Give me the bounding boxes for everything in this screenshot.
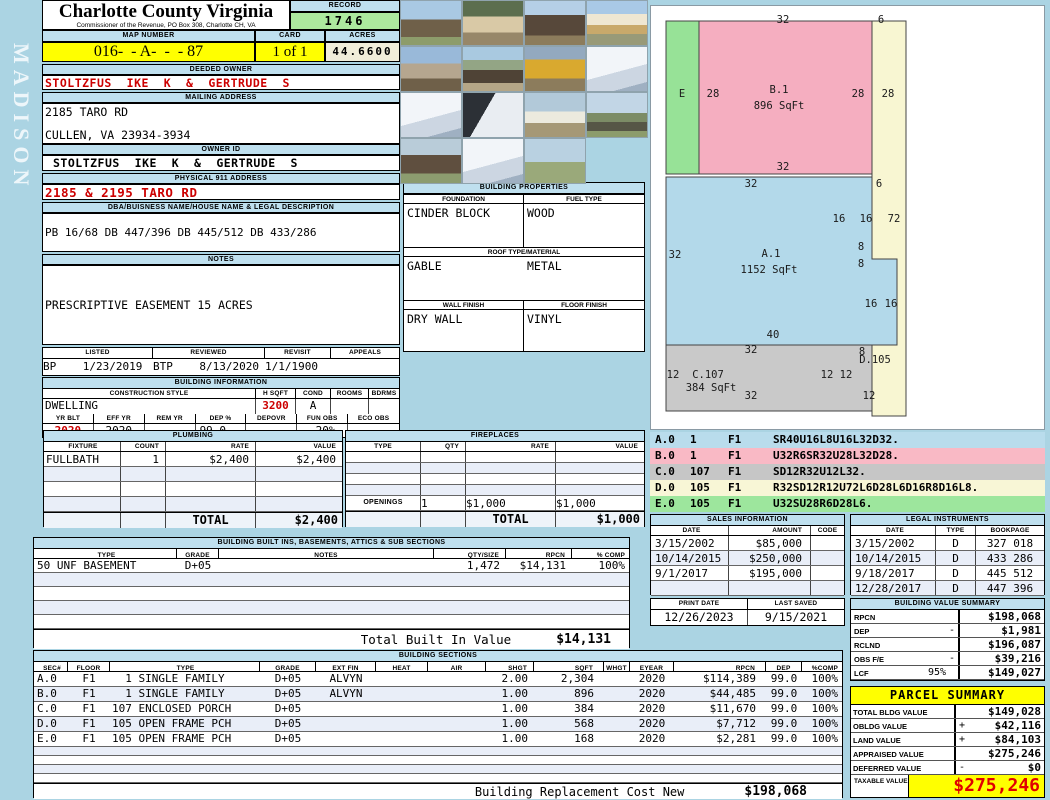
table-cell xyxy=(956,747,968,760)
photo-thumbnail[interactable] xyxy=(524,46,586,92)
notes-label: NOTES xyxy=(42,254,400,265)
table-cell xyxy=(166,482,256,496)
table-cell xyxy=(486,774,534,782)
sketch-dimension-label: 28 xyxy=(852,88,865,100)
table-cell: 1 xyxy=(686,432,728,448)
table-cell xyxy=(256,467,342,481)
table-cell: 3/15/2002 xyxy=(851,536,936,550)
table-row xyxy=(34,765,842,774)
table-cell: $196,087 xyxy=(958,638,1044,651)
table-cell xyxy=(44,497,121,511)
fireplaces-total-label: TOTAL xyxy=(466,512,556,527)
table-cell xyxy=(604,702,630,716)
table-cell xyxy=(110,756,260,764)
print-date-value: 12/26/2023 xyxy=(651,610,748,625)
table-cell xyxy=(572,573,629,586)
column-header: HEAT xyxy=(376,662,428,671)
wall-floor-values: DRY WALL VINYL xyxy=(404,310,644,351)
table-cell xyxy=(572,601,629,614)
openings-label: OPENINGS xyxy=(346,496,421,510)
table-cell xyxy=(811,536,844,550)
building-sections-footer: Building Replacement Cost New $198,068 xyxy=(34,783,842,799)
table-cell xyxy=(466,485,556,495)
table-cell: BP 1/23/2019 xyxy=(43,359,153,374)
fireplaces-panel: FIREPLACES TYPEQTYRATEVALUE OPENINGS 1 $… xyxy=(345,430,645,527)
table-cell: 99.0 xyxy=(766,687,802,701)
table-cell: OBS F/E xyxy=(851,652,906,665)
column-header: EFF YR xyxy=(94,414,145,423)
fireplace-openings-row: OPENINGS 1 $1,000 $1,000 xyxy=(346,496,644,511)
column-header: EYEAR xyxy=(630,662,674,671)
table-cell xyxy=(604,687,630,701)
sketch-dimension-label: 384 SqFt xyxy=(686,382,737,394)
table-cell: $0 xyxy=(968,761,1044,774)
foundation-value: CINDER BLOCK xyxy=(404,204,524,247)
table-cell: DEFERRED VALUE xyxy=(851,761,956,774)
table-cell: D+05 xyxy=(177,559,219,572)
table-cell xyxy=(630,765,674,773)
spacer xyxy=(44,513,121,528)
photo-thumbnail[interactable] xyxy=(400,46,462,92)
table-cell xyxy=(260,774,316,782)
column-header: TYPE xyxy=(110,662,260,671)
roof-type-material-label: ROOF TYPE/MATERIAL xyxy=(404,247,644,257)
table-cell xyxy=(421,452,466,462)
table-cell xyxy=(44,482,121,496)
spacer xyxy=(346,512,421,527)
column-header: RATE xyxy=(466,442,556,451)
table-row: RPCN$198,068 xyxy=(851,610,1044,624)
column-header: REVIEWED xyxy=(153,348,265,358)
table-cell xyxy=(421,485,466,495)
table-row: E.0105F1U32SU28R6D28L6. xyxy=(650,496,1045,512)
table-cell: APPRAISED VALUE xyxy=(851,747,956,760)
table-cell xyxy=(811,566,844,580)
table-row xyxy=(34,774,842,783)
table-cell: 1.00 xyxy=(486,717,534,731)
column-header: AMOUNT xyxy=(729,526,811,535)
table-cell: C.0 xyxy=(34,702,68,716)
table-row: OBS F/E-$39,216 xyxy=(851,652,1044,666)
table-cell: $11,670 xyxy=(674,702,766,716)
table-row: 3/15/2002D327 018 xyxy=(851,536,1044,551)
table-row xyxy=(44,482,342,497)
table-cell xyxy=(556,474,644,484)
openings-qty: 1 xyxy=(421,496,466,510)
table-cell: $114,389 xyxy=(674,672,766,686)
table-cell xyxy=(572,615,629,628)
table-cell: 1/1/1900 xyxy=(265,359,331,374)
photo-thumbnail[interactable] xyxy=(524,92,586,138)
table-cell: 1,472 xyxy=(434,559,506,572)
built-ins-footer: Total Built In Value $14,131 xyxy=(34,629,629,649)
table-row: FULLBATH1$2,400$2,400 xyxy=(44,452,342,467)
legal-header-row: DATETYPEBOOKPAGE xyxy=(851,526,1044,536)
table-row: DEFERRED VALUE-$0 xyxy=(851,761,1044,775)
column-header: TYPE xyxy=(936,526,976,535)
table-cell xyxy=(428,717,486,731)
table-cell xyxy=(428,765,486,773)
map-number-label: MAP NUMBER xyxy=(42,30,255,42)
sketch-dimension-label: 8 xyxy=(858,241,864,253)
table-cell xyxy=(110,765,260,773)
table-cell: F1 xyxy=(68,672,110,686)
table-cell: $275,246 xyxy=(968,747,1044,760)
table-cell xyxy=(428,687,486,701)
column-header: BOOKPAGE xyxy=(976,526,1044,535)
table-cell: 2020 xyxy=(630,717,674,731)
table-cell xyxy=(534,747,604,755)
sketch-dimension-label: 32 xyxy=(669,249,682,261)
table-cell: $84,103 xyxy=(968,733,1044,746)
record-number: 1746 xyxy=(290,12,400,30)
table-cell xyxy=(604,765,630,773)
wall-finish-label: WALL FINISH xyxy=(404,301,524,309)
physical-address-label: PHYSICAL 911 ADDRESS xyxy=(42,173,400,184)
building-sections-title: BUILDING SECTIONS xyxy=(34,651,842,662)
sketch-dimension-label: 72 xyxy=(888,213,901,225)
table-cell: DEP xyxy=(851,624,906,637)
table-cell: TOTAL BLDG VALUE xyxy=(851,705,956,718)
table-row xyxy=(34,587,629,601)
table-cell xyxy=(68,756,110,764)
sketch-dimension-label: 896 SqFt xyxy=(754,100,805,112)
table-cell xyxy=(166,467,256,481)
table-cell: 105 xyxy=(686,496,728,512)
table-cell xyxy=(466,452,556,462)
table-cell: F1 xyxy=(728,464,768,480)
table-cell: 12/28/2017 xyxy=(851,581,936,595)
table-cell: 9/1/2017 xyxy=(651,566,729,580)
sketch-dimension-label: E xyxy=(679,88,685,100)
column-header: GRADE xyxy=(177,549,219,558)
fireplaces-total-row: TOTAL $1,000 xyxy=(346,511,644,527)
table-cell xyxy=(346,452,421,462)
print-header-row: PRINT DATE LAST SAVED xyxy=(651,599,844,610)
note-line: PLANTED 1997, BALANCE PLANTED PINE 2015 xyxy=(45,345,399,346)
madison-watermark: MADISON xyxy=(0,0,34,235)
table-cell xyxy=(534,774,604,782)
table-cell xyxy=(766,756,802,764)
table-cell: 105 xyxy=(686,480,728,496)
table-cell: F1 xyxy=(728,480,768,496)
table-cell xyxy=(219,601,434,614)
photo-thumbnail[interactable] xyxy=(586,46,648,92)
table-cell: 99.0 xyxy=(766,732,802,746)
table-row: 10/14/2015D433 286 xyxy=(851,551,1044,566)
column-header: LISTED xyxy=(43,348,153,358)
table-row xyxy=(34,756,842,765)
sketch-dimension-label: 16 xyxy=(833,213,846,225)
sketch-dimension-label: 16 xyxy=(885,298,898,310)
bedrooms-value xyxy=(369,399,399,414)
photo-thumbnail[interactable] xyxy=(524,138,586,184)
sketch-dimension-label: 40 xyxy=(767,329,780,341)
spacer xyxy=(421,512,466,527)
column-header: QTY xyxy=(421,442,466,451)
table-cell: RPCN xyxy=(851,610,906,623)
table-cell: 100% xyxy=(802,687,842,701)
table-cell xyxy=(434,615,506,628)
table-cell xyxy=(331,359,399,374)
table-cell: + xyxy=(956,719,968,732)
sketch-dimension-label: 32 xyxy=(777,14,790,26)
openings-rate: $1,000 xyxy=(466,496,556,510)
table-cell xyxy=(260,747,316,755)
table-row: LCF95%$149,027 xyxy=(851,666,1044,680)
table-row xyxy=(651,581,844,596)
plumbing-rows: FULLBATH1$2,400$2,400 xyxy=(44,452,342,512)
table-cell: A.0 xyxy=(650,432,686,448)
card-value: 1 of 1 xyxy=(255,42,325,62)
table-cell xyxy=(428,747,486,755)
rooms-value xyxy=(331,399,369,414)
table-cell xyxy=(630,756,674,764)
table-row xyxy=(346,463,644,474)
table-cell xyxy=(434,587,506,600)
table-cell xyxy=(121,467,166,481)
photo-thumbnail[interactable] xyxy=(586,92,648,138)
table-cell: 896 xyxy=(534,687,604,701)
table-row: 3/15/2002$85,000 xyxy=(651,536,844,551)
table-cell: $250,000 xyxy=(729,551,811,565)
table-cell: $195,000 xyxy=(729,566,811,580)
taxable-value-amount: $275,246 xyxy=(909,775,1044,797)
table-cell xyxy=(802,774,842,782)
table-cell xyxy=(256,482,342,496)
column-header: TYPE xyxy=(346,442,421,451)
table-cell xyxy=(376,756,428,764)
table-cell xyxy=(177,601,219,614)
sketch-dimension-label: B.1 xyxy=(770,84,789,96)
column-header: YR BLT xyxy=(43,414,94,423)
table-cell: 1 xyxy=(121,452,166,466)
table-row xyxy=(34,573,629,587)
table-cell xyxy=(466,474,556,484)
photo-thumbnail[interactable] xyxy=(400,138,462,184)
table-cell: B.0 xyxy=(34,687,68,701)
table-cell xyxy=(556,463,644,473)
county-title: Charlotte County Virginia xyxy=(43,1,289,22)
column-header: SEC# xyxy=(34,662,68,671)
photo-thumbnail[interactable] xyxy=(462,46,524,92)
table-cell xyxy=(219,615,434,628)
sales-header-row: DATEAMOUNTCODE xyxy=(651,526,844,536)
sketch-dimension-label: 6 xyxy=(876,178,882,190)
table-cell xyxy=(421,463,466,473)
table-cell: $2,281 xyxy=(674,732,766,746)
table-cell: 10/14/2015 xyxy=(651,551,729,565)
table-row xyxy=(346,485,644,496)
sketch-dimension-label: 12 xyxy=(863,390,876,402)
table-cell: $42,116 xyxy=(968,719,1044,732)
fireplaces-title: FIREPLACES xyxy=(346,431,644,442)
table-cell: 9/18/2017 xyxy=(851,566,936,580)
table-cell: $85,000 xyxy=(729,536,811,550)
table-cell xyxy=(604,672,630,686)
sketch-dimension-label: C.107 xyxy=(692,369,724,381)
table-cell xyxy=(34,765,68,773)
table-cell: U32R6SR32U28L32D28. xyxy=(768,448,1045,464)
column-header: CODE xyxy=(811,526,844,535)
table-cell xyxy=(486,747,534,755)
table-cell xyxy=(506,587,572,600)
table-cell: F1 xyxy=(68,732,110,746)
table-cell xyxy=(256,497,342,511)
sketch-dimension-label: 32 xyxy=(745,178,758,190)
table-cell: B.0 xyxy=(650,448,686,464)
building-sections-panel: BUILDING SECTIONS SEC#FLOORTYPEGRADEEXT … xyxy=(33,650,843,798)
roof-type-value: GABLE xyxy=(404,257,524,300)
table-cell: LAND VALUE xyxy=(851,733,956,746)
table-cell: F1 xyxy=(68,702,110,716)
table-cell xyxy=(766,774,802,782)
table-row xyxy=(34,747,842,756)
sketch-labels-layer: 326E28B.1896 SqFt2828323261616728832A.11… xyxy=(651,6,1044,429)
fireplaces-total-value: $1,000 xyxy=(556,512,644,527)
photo-thumbnail[interactable] xyxy=(462,138,524,184)
sketch-dimension-label: 16 xyxy=(860,213,873,225)
table-cell: 2.00 xyxy=(486,672,534,686)
table-cell: 107 xyxy=(686,464,728,480)
last-saved-label: LAST SAVED xyxy=(748,599,844,609)
table-cell xyxy=(34,774,68,782)
table-cell: 99.0 xyxy=(766,717,802,731)
table-cell xyxy=(34,601,177,614)
table-cell: F1 xyxy=(728,448,768,464)
column-header: COUNT xyxy=(121,442,166,451)
table-cell: 1 xyxy=(686,448,728,464)
print-values-row: 12/26/2023 9/15/2021 xyxy=(651,610,844,625)
table-cell xyxy=(34,615,177,628)
table-cell xyxy=(604,732,630,746)
table-cell xyxy=(946,666,958,679)
column-header: SQFT xyxy=(534,662,604,671)
column-header: WHGT xyxy=(604,662,630,671)
building-info-header2: YR BLTEFF YRREM YRDEP %DEPOVRFUN OBSECO … xyxy=(43,414,399,424)
table-cell: $2,400 xyxy=(256,452,342,466)
table-cell: 50 UNF BASEMENT xyxy=(34,559,177,572)
table-cell xyxy=(316,717,376,731)
table-cell xyxy=(260,756,316,764)
building-info-values1: DWELLING 3200 A xyxy=(43,399,399,414)
table-cell: 1.00 xyxy=(486,732,534,746)
table-cell: 100% xyxy=(802,732,842,746)
table-cell: BTP 8/13/2020 xyxy=(153,359,265,374)
table-cell xyxy=(486,756,534,764)
heated-sqft-value: 3200 xyxy=(256,399,296,414)
table-cell xyxy=(121,497,166,511)
table-cell xyxy=(534,765,604,773)
table-row: BP 1/23/2019BTP 8/13/20201/1/1900 xyxy=(43,359,399,374)
table-cell xyxy=(506,573,572,586)
property-record-card: MADISON Charlotte County Virginia Commis… xyxy=(0,0,1050,800)
column-header: QTY/SIZE xyxy=(434,549,506,558)
sketch-dimension-label: 12 xyxy=(840,369,853,381)
mailing-line1: 2185 TARO RD xyxy=(45,105,397,119)
table-cell xyxy=(811,581,844,595)
column-header: CONSTRUCTION STYLE xyxy=(43,389,256,398)
table-row: 9/1/2017$195,000 xyxy=(651,566,844,581)
table-row: A.0F1 1 SINGLE FAMILYD+05ALVYN2.002,3042… xyxy=(34,672,842,687)
photo-thumbnail[interactable] xyxy=(462,92,524,138)
table-cell xyxy=(376,747,428,755)
table-cell: 384 xyxy=(534,702,604,716)
table-cell xyxy=(177,573,219,586)
table-cell xyxy=(906,624,946,637)
taxable-value-label: TAXABLE VALUE xyxy=(851,775,909,797)
foundation-fuel-values: CINDER BLOCK WOOD xyxy=(404,204,644,247)
built-ins-rows: 50 UNF BASEMENTD+051,472$14,131100% xyxy=(34,559,629,629)
table-cell xyxy=(428,732,486,746)
photo-thumbnail[interactable] xyxy=(524,0,586,46)
table-cell xyxy=(630,747,674,755)
table-cell xyxy=(506,615,572,628)
table-cell xyxy=(376,672,428,686)
column-header: H SQFT xyxy=(256,389,296,398)
plumbing-panel: PLUMBING FIXTURECOUNTRATEVALUE FULLBATH1… xyxy=(43,430,343,527)
building-properties-panel: BUILDING PROPERTIES FOUNDATION FUEL TYPE… xyxy=(403,182,645,352)
table-cell xyxy=(946,638,958,651)
photo-thumbnail[interactable] xyxy=(400,0,462,46)
photo-thumbnail[interactable] xyxy=(462,0,524,46)
table-cell xyxy=(802,756,842,764)
table-cell xyxy=(946,610,958,623)
table-cell xyxy=(434,601,506,614)
table-cell xyxy=(376,687,428,701)
table-cell: U32SU28R6D28L6. xyxy=(768,496,1045,512)
table-cell: E.0 xyxy=(650,496,686,512)
table-cell xyxy=(766,747,802,755)
table-row xyxy=(346,474,644,485)
dba-legal-label: DBA/BUISNESS NAME/HOUSE NAME & LEGAL DES… xyxy=(42,202,400,213)
table-cell: 1 SINGLE FAMILY xyxy=(110,672,260,686)
column-header: VALUE xyxy=(556,442,644,451)
table-cell: OBLDG VALUE xyxy=(851,719,956,732)
table-row: TOTAL BLDG VALUE$149,028 xyxy=(851,705,1044,719)
table-cell: 99.0 xyxy=(766,672,802,686)
table-cell: $44,485 xyxy=(674,687,766,701)
photo-thumbnail[interactable] xyxy=(586,0,648,46)
county-subtitle: Commissioner of the Revenue, PO Box 308,… xyxy=(43,22,289,29)
column-header: COND xyxy=(296,389,331,398)
table-cell: - xyxy=(946,624,958,637)
table-row xyxy=(346,452,644,463)
parcel-summary-panel: PARCEL SUMMARY TOTAL BLDG VALUE$149,028O… xyxy=(850,686,1045,798)
floor-finish-label: FLOOR FINISH xyxy=(524,301,644,309)
table-cell: $149,027 xyxy=(958,666,1044,679)
sketch-legend-rows: A.01F1SR40U16L8U16L32D32.B.01F1U32R6SR32… xyxy=(650,432,1045,512)
table-cell: 100% xyxy=(802,702,842,716)
photo-thumbnail[interactable] xyxy=(400,92,462,138)
column-header: APPEALS xyxy=(331,348,399,358)
building-value-summary-title: BUILDING VALUE SUMMARY xyxy=(851,599,1044,610)
column-header: TYPE xyxy=(34,549,177,558)
table-cell xyxy=(434,573,506,586)
table-cell: D+05 xyxy=(260,717,316,731)
table-cell: D xyxy=(936,566,976,580)
fuel-type-label: FUEL TYPE xyxy=(524,195,644,203)
table-cell xyxy=(316,747,376,755)
table-cell xyxy=(34,573,177,586)
building-info-header1: CONSTRUCTION STYLEH SQFTCONDROOMSBDRMS xyxy=(43,389,399,399)
table-row xyxy=(34,615,629,629)
sketch-dimension-label: 32 xyxy=(777,161,790,173)
plumbing-total-row: TOTAL $2,400 xyxy=(44,512,342,528)
sketch-dimension-label: 1152 SqFt xyxy=(741,264,798,276)
table-cell xyxy=(68,774,110,782)
table-cell: 10/14/2015 xyxy=(851,551,936,565)
